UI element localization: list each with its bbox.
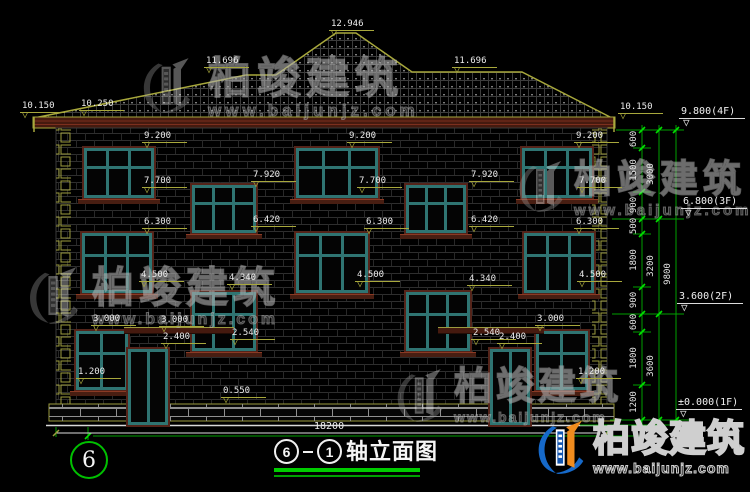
chain-dim: 1200 <box>629 384 639 420</box>
chain-dim: 1500 <box>629 152 639 188</box>
window-sill <box>290 294 374 299</box>
elevation-flag: 11.696 <box>452 56 497 68</box>
elevation-value: 6.420 <box>469 215 514 227</box>
elevation-value: 6.300 <box>364 217 409 229</box>
title-underline-thin <box>274 475 420 477</box>
elevation-value: 9.200 <box>574 131 619 143</box>
elevation-flag: 3.000 <box>535 314 580 326</box>
elevation-value: 1.200 <box>576 367 621 379</box>
elevation-flag: 12.946 <box>329 19 374 31</box>
title-axis-to: 1 <box>317 439 342 464</box>
window-mullion <box>566 151 569 195</box>
elevation-flag: 6.420 <box>251 215 296 227</box>
elevation-value: 1.200 <box>76 367 121 379</box>
chain-dim: 1800 <box>629 242 639 278</box>
elevation-value: 7.700 <box>142 176 187 188</box>
elevation-flag: 7.920 <box>469 170 514 182</box>
elevation-flag: 1.200 <box>576 367 621 379</box>
elevation-flag: 2.400 <box>161 332 206 344</box>
chain-dim: 3600 <box>646 348 656 384</box>
window-sill <box>186 234 262 239</box>
window-transom <box>299 254 365 257</box>
elevation-value: 9.200 <box>142 131 187 143</box>
elevation-flag: 4.340 <box>227 273 272 285</box>
elevation-flag: 11.696 <box>204 56 249 68</box>
quoin-left <box>56 128 71 404</box>
window-sill <box>516 199 598 204</box>
elevation-flag: 10.150 <box>20 101 65 113</box>
title-underline-thick <box>274 468 420 472</box>
elevation-value: 7.700 <box>577 176 622 188</box>
elevation-flag: 7.700 <box>577 176 622 188</box>
title-text: 轴立面图 <box>346 440 438 464</box>
window-sill <box>530 391 594 396</box>
elevation-value: 2.400 <box>497 332 542 344</box>
window-sill <box>518 294 600 299</box>
elevation-value: 4.500 <box>577 270 622 282</box>
window-sill <box>400 352 476 357</box>
stair-window <box>406 292 470 351</box>
window-mullion <box>544 151 547 195</box>
elevation-value: 4.340 <box>227 273 272 285</box>
elevation-flag: 4.500 <box>139 270 184 282</box>
entry-door <box>490 349 530 425</box>
elevation-value: 3.000 <box>159 315 204 327</box>
window-mullion <box>100 334 103 387</box>
elevation-flag: 2.540 <box>230 328 275 340</box>
axis-bubble: 6 <box>70 441 108 479</box>
elevation-value: 11.696 <box>452 56 497 68</box>
floor-level-value: 9.800(4F) <box>679 106 745 119</box>
elevation-flag: 6.300 <box>574 217 619 229</box>
chain-dim: 3200 <box>646 248 656 284</box>
total-width-label: 18200 <box>314 421 344 432</box>
window-mullion <box>232 188 235 230</box>
floor-level-value: ±0.000(1F) <box>676 397 742 410</box>
elevation-value: 2.400 <box>161 332 206 344</box>
elevation-flag: 3.000 <box>159 315 204 327</box>
elevation-flag: 10.250 <box>79 99 124 111</box>
entry-door <box>128 349 168 425</box>
elevation-value: 4.500 <box>355 270 400 282</box>
elevation-flag: 7.920 <box>251 170 296 182</box>
elevation-value: 4.500 <box>139 270 184 282</box>
floor-level-value: 6.800(3F) <box>681 196 747 209</box>
chain-dim: 1800 <box>629 340 639 376</box>
elevation-value: 10.150 <box>20 101 65 113</box>
door-stile <box>147 352 150 422</box>
elevation-value: 6.300 <box>574 217 619 229</box>
axis-bubble-number: 6 <box>82 448 96 473</box>
window-mullion <box>212 188 215 230</box>
elevation-flag: 4.500 <box>577 270 622 282</box>
elevation-flag: 7.700 <box>142 176 187 188</box>
elevation-flag: 6.300 <box>364 217 409 229</box>
window-mullion <box>425 188 428 230</box>
elevation-flag: 9.200 <box>142 131 187 143</box>
cad-elevation-drawing: 12.946 11.696 11.696 10.150 10.250 10.15… <box>0 0 750 492</box>
window-mullion <box>319 236 322 290</box>
elevation-value: 11.696 <box>204 56 249 68</box>
drawing-title: 6 1 轴立面图 <box>274 439 438 464</box>
window-transom <box>299 166 375 169</box>
window-mullion <box>348 151 351 195</box>
floor-level-flag: 3.600(2F) <box>677 291 743 304</box>
elevation-flag: 9.200 <box>347 131 392 143</box>
elevation-value: 9.200 <box>347 131 392 143</box>
elevation-flag: 6.420 <box>469 215 514 227</box>
elevation-value: 6.300 <box>142 217 187 229</box>
window-sill <box>70 391 134 396</box>
elevation-flag: 4.340 <box>467 274 512 286</box>
door-stile <box>509 352 512 422</box>
elevation-flag: 4.500 <box>355 270 400 282</box>
chain-dim: 9800 <box>663 256 673 292</box>
elevation-value: 4.340 <box>467 274 512 286</box>
elevation-value: 10.250 <box>79 99 124 111</box>
window-mullion <box>322 151 325 195</box>
window-sill <box>186 352 262 357</box>
window-transom <box>87 166 151 169</box>
stair-window <box>192 185 256 233</box>
window-mullion <box>560 334 563 387</box>
title-axis-from: 6 <box>274 439 299 464</box>
company-logo: 柏竣建筑 www.baijunjz.com <box>535 420 745 478</box>
window-mullion <box>106 151 109 195</box>
elevation-flag: 7.700 <box>357 176 402 188</box>
elevation-value: 2.540 <box>230 328 275 340</box>
window <box>296 148 378 198</box>
elevation-value: 7.700 <box>357 176 402 188</box>
window-mullion <box>212 295 215 348</box>
elevation-value: 12.946 <box>329 19 374 31</box>
elevation-value: 10.150 <box>618 102 663 114</box>
window-mullion <box>128 151 131 195</box>
window-transom <box>525 166 589 169</box>
window-mullion <box>546 236 549 290</box>
elevation-flag: 0.550 <box>221 386 266 398</box>
window-mullion <box>426 295 429 348</box>
elevation-flag: 2.400 <box>497 332 542 344</box>
window-transom <box>409 202 463 205</box>
window-mullion <box>341 236 344 290</box>
elevation-value: 7.920 <box>251 170 296 182</box>
chain-dim: 500 <box>629 208 639 244</box>
window-mullion <box>104 236 107 290</box>
elevation-value: 6.420 <box>251 215 296 227</box>
window-sill <box>290 199 384 204</box>
chain-dim: 600 <box>629 304 639 340</box>
elevation-flag: 6.300 <box>142 217 187 229</box>
chain-dim: 3000 <box>646 156 656 192</box>
floor-level-value: 3.600(2F) <box>677 291 743 304</box>
elevation-flag: 9.200 <box>574 131 619 143</box>
window-mullion <box>568 236 571 290</box>
elevation-flag: 1.200 <box>76 367 121 379</box>
window-mullion <box>444 188 447 230</box>
window-transom <box>409 313 467 316</box>
elevation-flag: 10.150 <box>618 102 663 114</box>
elevation-value: 0.550 <box>221 386 266 398</box>
floor-level-flag: 9.800(4F) <box>679 106 745 119</box>
floor-level-flag: ±0.000(1F) <box>676 397 742 410</box>
window-sill <box>78 199 160 204</box>
company-website: www.baijunjz.com <box>593 460 730 476</box>
window-transom <box>527 254 591 257</box>
elevation-value: 7.920 <box>469 170 514 182</box>
elevation-value: 3.000 <box>535 314 580 326</box>
floor-level-flag: 6.800(3F) <box>681 196 747 209</box>
elevation-flag: 3.000 <box>91 314 136 326</box>
window-mullion <box>446 295 449 348</box>
stair-window <box>406 185 466 233</box>
elevation-value: 3.000 <box>91 314 136 326</box>
title-dash <box>303 451 313 453</box>
window-sill <box>400 234 472 239</box>
quoin-right <box>592 128 607 404</box>
window-mullion <box>126 236 129 290</box>
company-name: 柏竣建筑 <box>593 418 745 459</box>
company-logo-icon <box>535 420 587 478</box>
window-transom <box>195 202 253 205</box>
window-sill <box>76 294 158 299</box>
window-transom <box>85 254 149 257</box>
